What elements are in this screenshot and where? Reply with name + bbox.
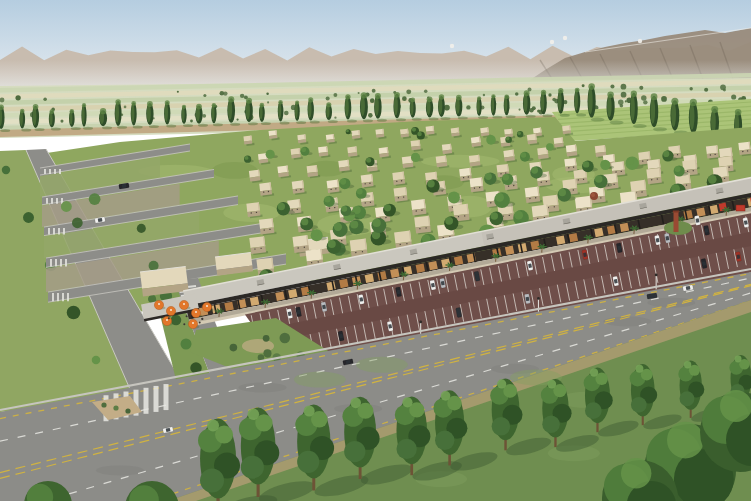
aerial-render	[0, 0, 751, 501]
house	[738, 141, 751, 156]
